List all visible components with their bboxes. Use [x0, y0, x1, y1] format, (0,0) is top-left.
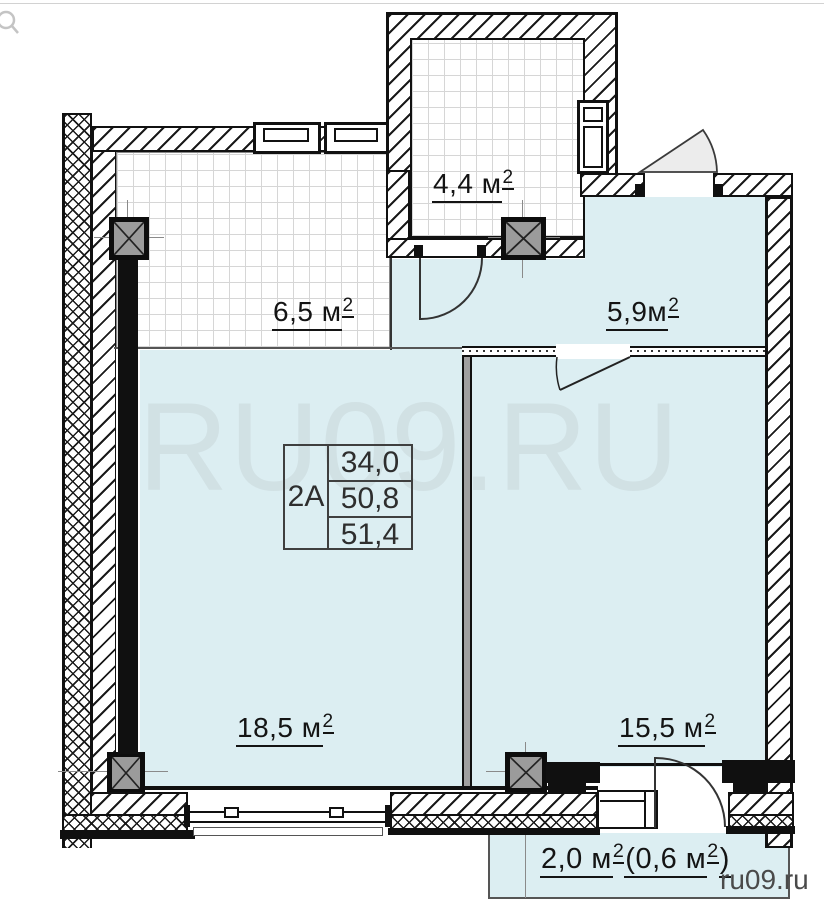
wall-entrance-right	[713, 173, 793, 197]
column-marker	[109, 217, 149, 260]
top-divider	[0, 3, 824, 4]
window-living-line	[188, 811, 390, 813]
room-label-bedroom: 15,5 м2	[618, 712, 716, 747]
apartment-area-total: 50,8	[329, 480, 411, 516]
door-jamb	[713, 184, 723, 196]
column-marker	[501, 217, 546, 260]
room-label-balcony-left: 6,5 м2	[272, 296, 354, 331]
door-arc-balcony-bottom	[656, 757, 726, 827]
column-marker	[505, 752, 547, 793]
window-sill	[263, 128, 309, 142]
wall-pier-left	[118, 260, 138, 754]
window-end-cap	[184, 805, 190, 827]
wall-bottom-right-base	[726, 826, 795, 834]
magnifier-icon	[0, 10, 22, 38]
room-label-living: 18,5 м2	[236, 712, 334, 747]
door-leaf-balcony-bottom	[654, 757, 656, 828]
wall-bottom-left-base	[60, 830, 195, 839]
radiator-segment	[583, 126, 603, 168]
door-jamb	[414, 245, 423, 257]
apartment-info-table: 2А 34,0 50,8 51,4	[283, 444, 413, 550]
apartment-area-living: 34,0	[329, 446, 411, 480]
floor-hall-upper	[585, 197, 765, 259]
wall-corridor-edge	[390, 258, 392, 350]
entrance-door-swing	[628, 116, 723, 176]
lintel-step	[548, 780, 586, 793]
window-mullion	[329, 807, 344, 818]
wall-right-outer	[765, 197, 793, 848]
site-url: ru09.ru	[720, 864, 809, 896]
room-label-hall: 5,9м2	[606, 296, 679, 331]
radiator-segment	[583, 107, 603, 122]
apartment-unit: 2А	[285, 446, 329, 548]
apartment-area-overall: 51,4	[329, 516, 411, 552]
room-label-balcony-top: 4,4 м2	[432, 168, 514, 203]
door-leaf-balcony-top	[419, 258, 421, 320]
door-opening-balcony-top	[414, 240, 486, 256]
window-living-line	[188, 821, 390, 823]
floor-plan: RU09.RU	[0, 0, 824, 907]
window-sill	[334, 128, 378, 142]
wall-bottom-middle-base	[388, 828, 600, 835]
window-mullion	[224, 807, 239, 818]
column-marker	[107, 752, 145, 794]
door-jamb	[635, 184, 645, 196]
room-label-balcony-bottom: 2,0 м2 (0,6 м2)	[540, 842, 731, 878]
window-sill-outer	[193, 827, 383, 836]
wall-left-outer	[62, 113, 92, 848]
wall-partition-rooms	[462, 357, 472, 790]
floor-balcony-top	[410, 38, 585, 238]
wall-line-hall-bottom-left	[114, 347, 462, 349]
window-bedroom-line	[600, 800, 650, 802]
door-jamb	[477, 245, 486, 257]
door-swing-bedroom	[548, 346, 640, 402]
